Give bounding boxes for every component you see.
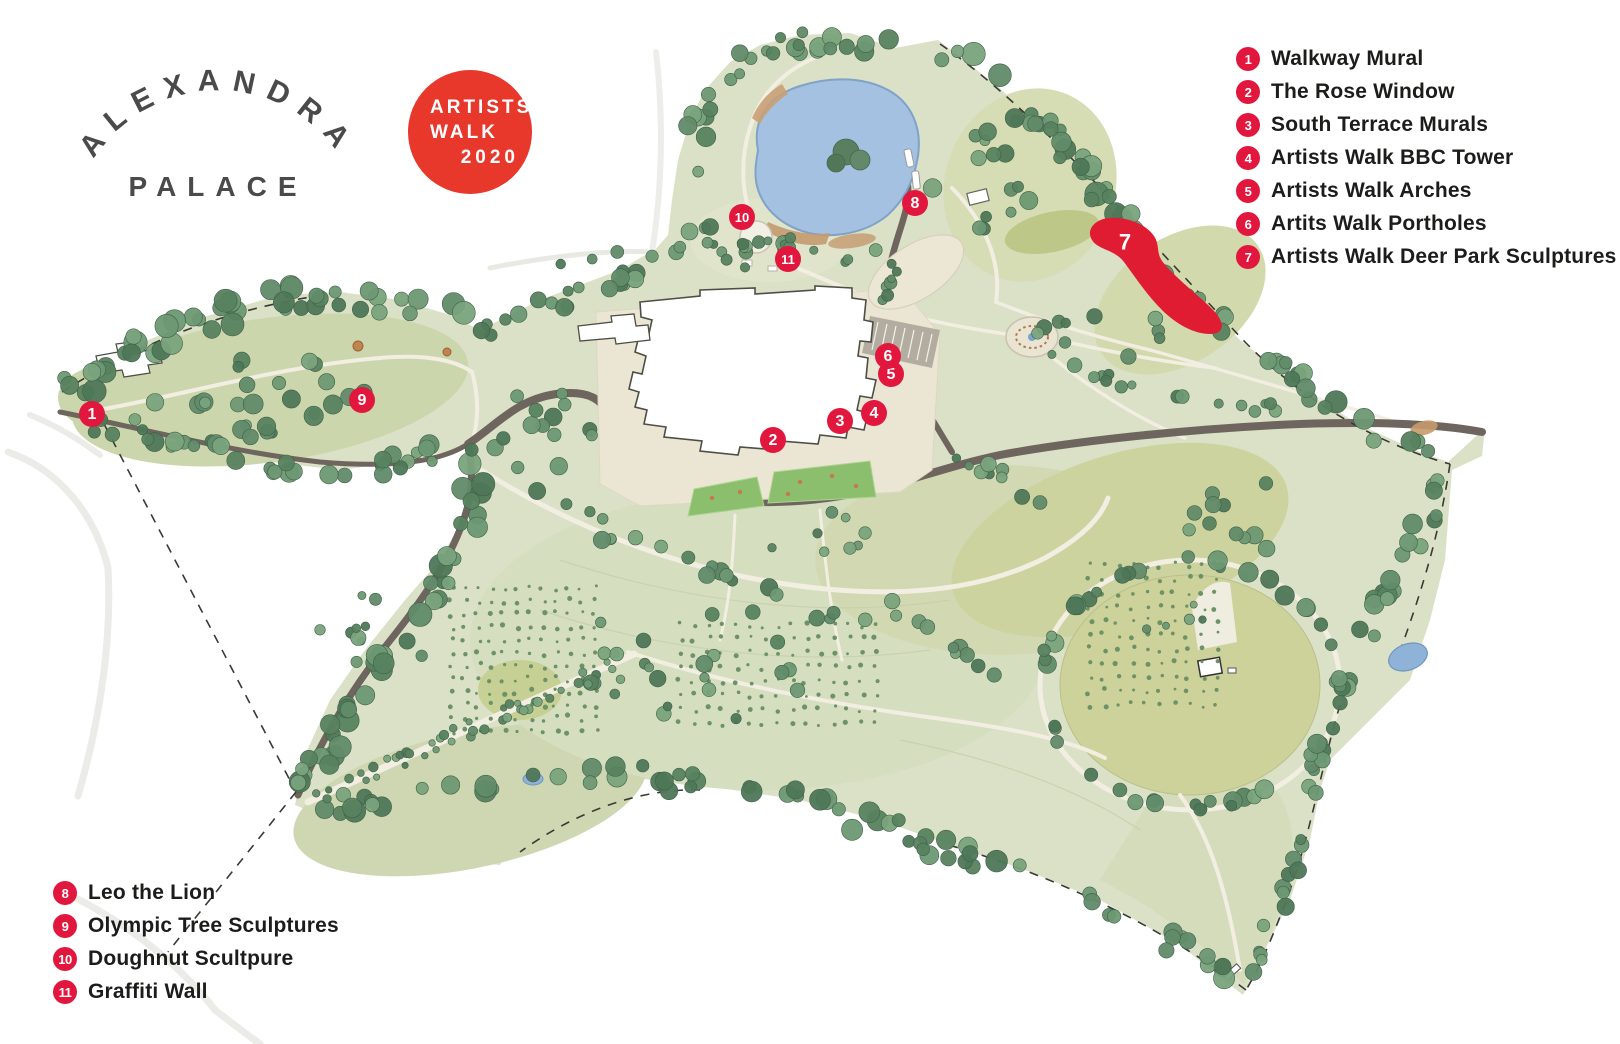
legend-top-item-1: 1Walkway Mural [1236,47,1616,71]
legend-marker-badge: 10 [53,947,77,971]
legend-marker-badge: 8 [53,881,77,905]
legend-item-label: Artists Walk BBC Tower [1271,146,1513,170]
legend-item-label: Olympic Tree Sculptures [88,914,339,938]
legend-marker-badge: 1 [1236,47,1260,71]
svg-text:4: 4 [870,405,879,422]
legend-marker-badge: 4 [1236,146,1260,170]
legend-item-label: Walkway Mural [1271,47,1423,71]
map-marker-4[interactable]: 4 [861,400,887,426]
legend-top-item-3: 3South Terrace Murals [1236,113,1616,137]
alexandra-palace-logo: ALEXANDRA PALACE [50,24,386,200]
logo-arc-text: ALEXANDRA [73,64,364,163]
svg-text:ALEXANDRA: ALEXANDRA [73,64,364,163]
legend-item-label: Artists Walk Deer Park Sculptures [1271,245,1616,269]
map-marker-8[interactable]: 8 [902,190,928,216]
legend-marker-badge: 6 [1236,212,1260,236]
artists-walk-map-poster: 7 123456891011 ALEXANDRA PALACE ARTISTS … [0,0,1620,1044]
legend-top: 1Walkway Mural2The Rose Window3South Ter… [1236,47,1616,278]
badge-line-3: 2020 [408,145,532,170]
legend-top-item-2: 2The Rose Window [1236,80,1616,104]
svg-text:8: 8 [911,195,920,212]
legend-bottom-item-9: 9Olympic Tree Sculptures [53,914,339,938]
legend-item-label: Leo the Lion [88,881,215,905]
legend-top-item-6: 6Artits Walk Portholes [1236,212,1616,236]
legend-item-label: Doughnut Scultpure [88,947,293,971]
legend-top-item-5: 5Artists Walk Arches [1236,179,1616,203]
map-marker-2[interactable]: 2 [760,427,786,453]
legend-marker-badge: 2 [1236,80,1260,104]
legend-marker-badge: 3 [1236,113,1260,137]
map-marker-9[interactable]: 9 [349,387,375,413]
svg-text:11: 11 [781,252,795,267]
legend-top-item-7: 7Artists Walk Deer Park Sculptures [1236,245,1616,269]
map-marker-1[interactable]: 1 [79,401,105,427]
legend-item-label: Artists Walk Arches [1271,179,1472,203]
deer-park-label: 7 [1119,230,1131,255]
legend-marker-badge: 11 [53,980,77,1004]
logo-sub-text: PALACE [128,171,307,200]
legend-bottom-item-8: 8Leo the Lion [53,881,339,905]
legend-bottom-item-10: 10Doughnut Scultpure [53,947,339,971]
legend-item-label: The Rose Window [1271,80,1455,104]
legend-bottom: 8Leo the Lion9Olympic Tree Sculptures10D… [53,881,339,1013]
legend-marker-badge: 5 [1236,179,1260,203]
map-marker-6[interactable]: 6 [875,343,901,369]
legend-item-label: Artits Walk Portholes [1271,212,1487,236]
legend-marker-badge: 7 [1236,245,1260,269]
badge-line-2: WALK [408,120,532,145]
svg-text:9: 9 [358,392,367,409]
legend-top-item-4: 4Artists Walk BBC Tower [1236,146,1616,170]
legend-item-label: South Terrace Murals [1271,113,1488,137]
badge-line-1: ARTISTS [408,95,532,120]
svg-text:1: 1 [88,406,97,423]
map-marker-11[interactable]: 11 [775,246,801,272]
svg-text:2: 2 [769,432,778,449]
svg-text:6: 6 [884,348,893,365]
svg-text:10: 10 [735,210,749,225]
map-marker-3[interactable]: 3 [827,408,853,434]
legend-marker-badge: 9 [53,914,77,938]
legend-bottom-item-11: 11Graffiti Wall [53,980,339,1004]
map-marker-10[interactable]: 10 [729,204,755,230]
artists-walk-badge: ARTISTS WALK 2020 [408,70,532,194]
svg-text:3: 3 [836,413,845,430]
legend-item-label: Graffiti Wall [88,980,208,1004]
